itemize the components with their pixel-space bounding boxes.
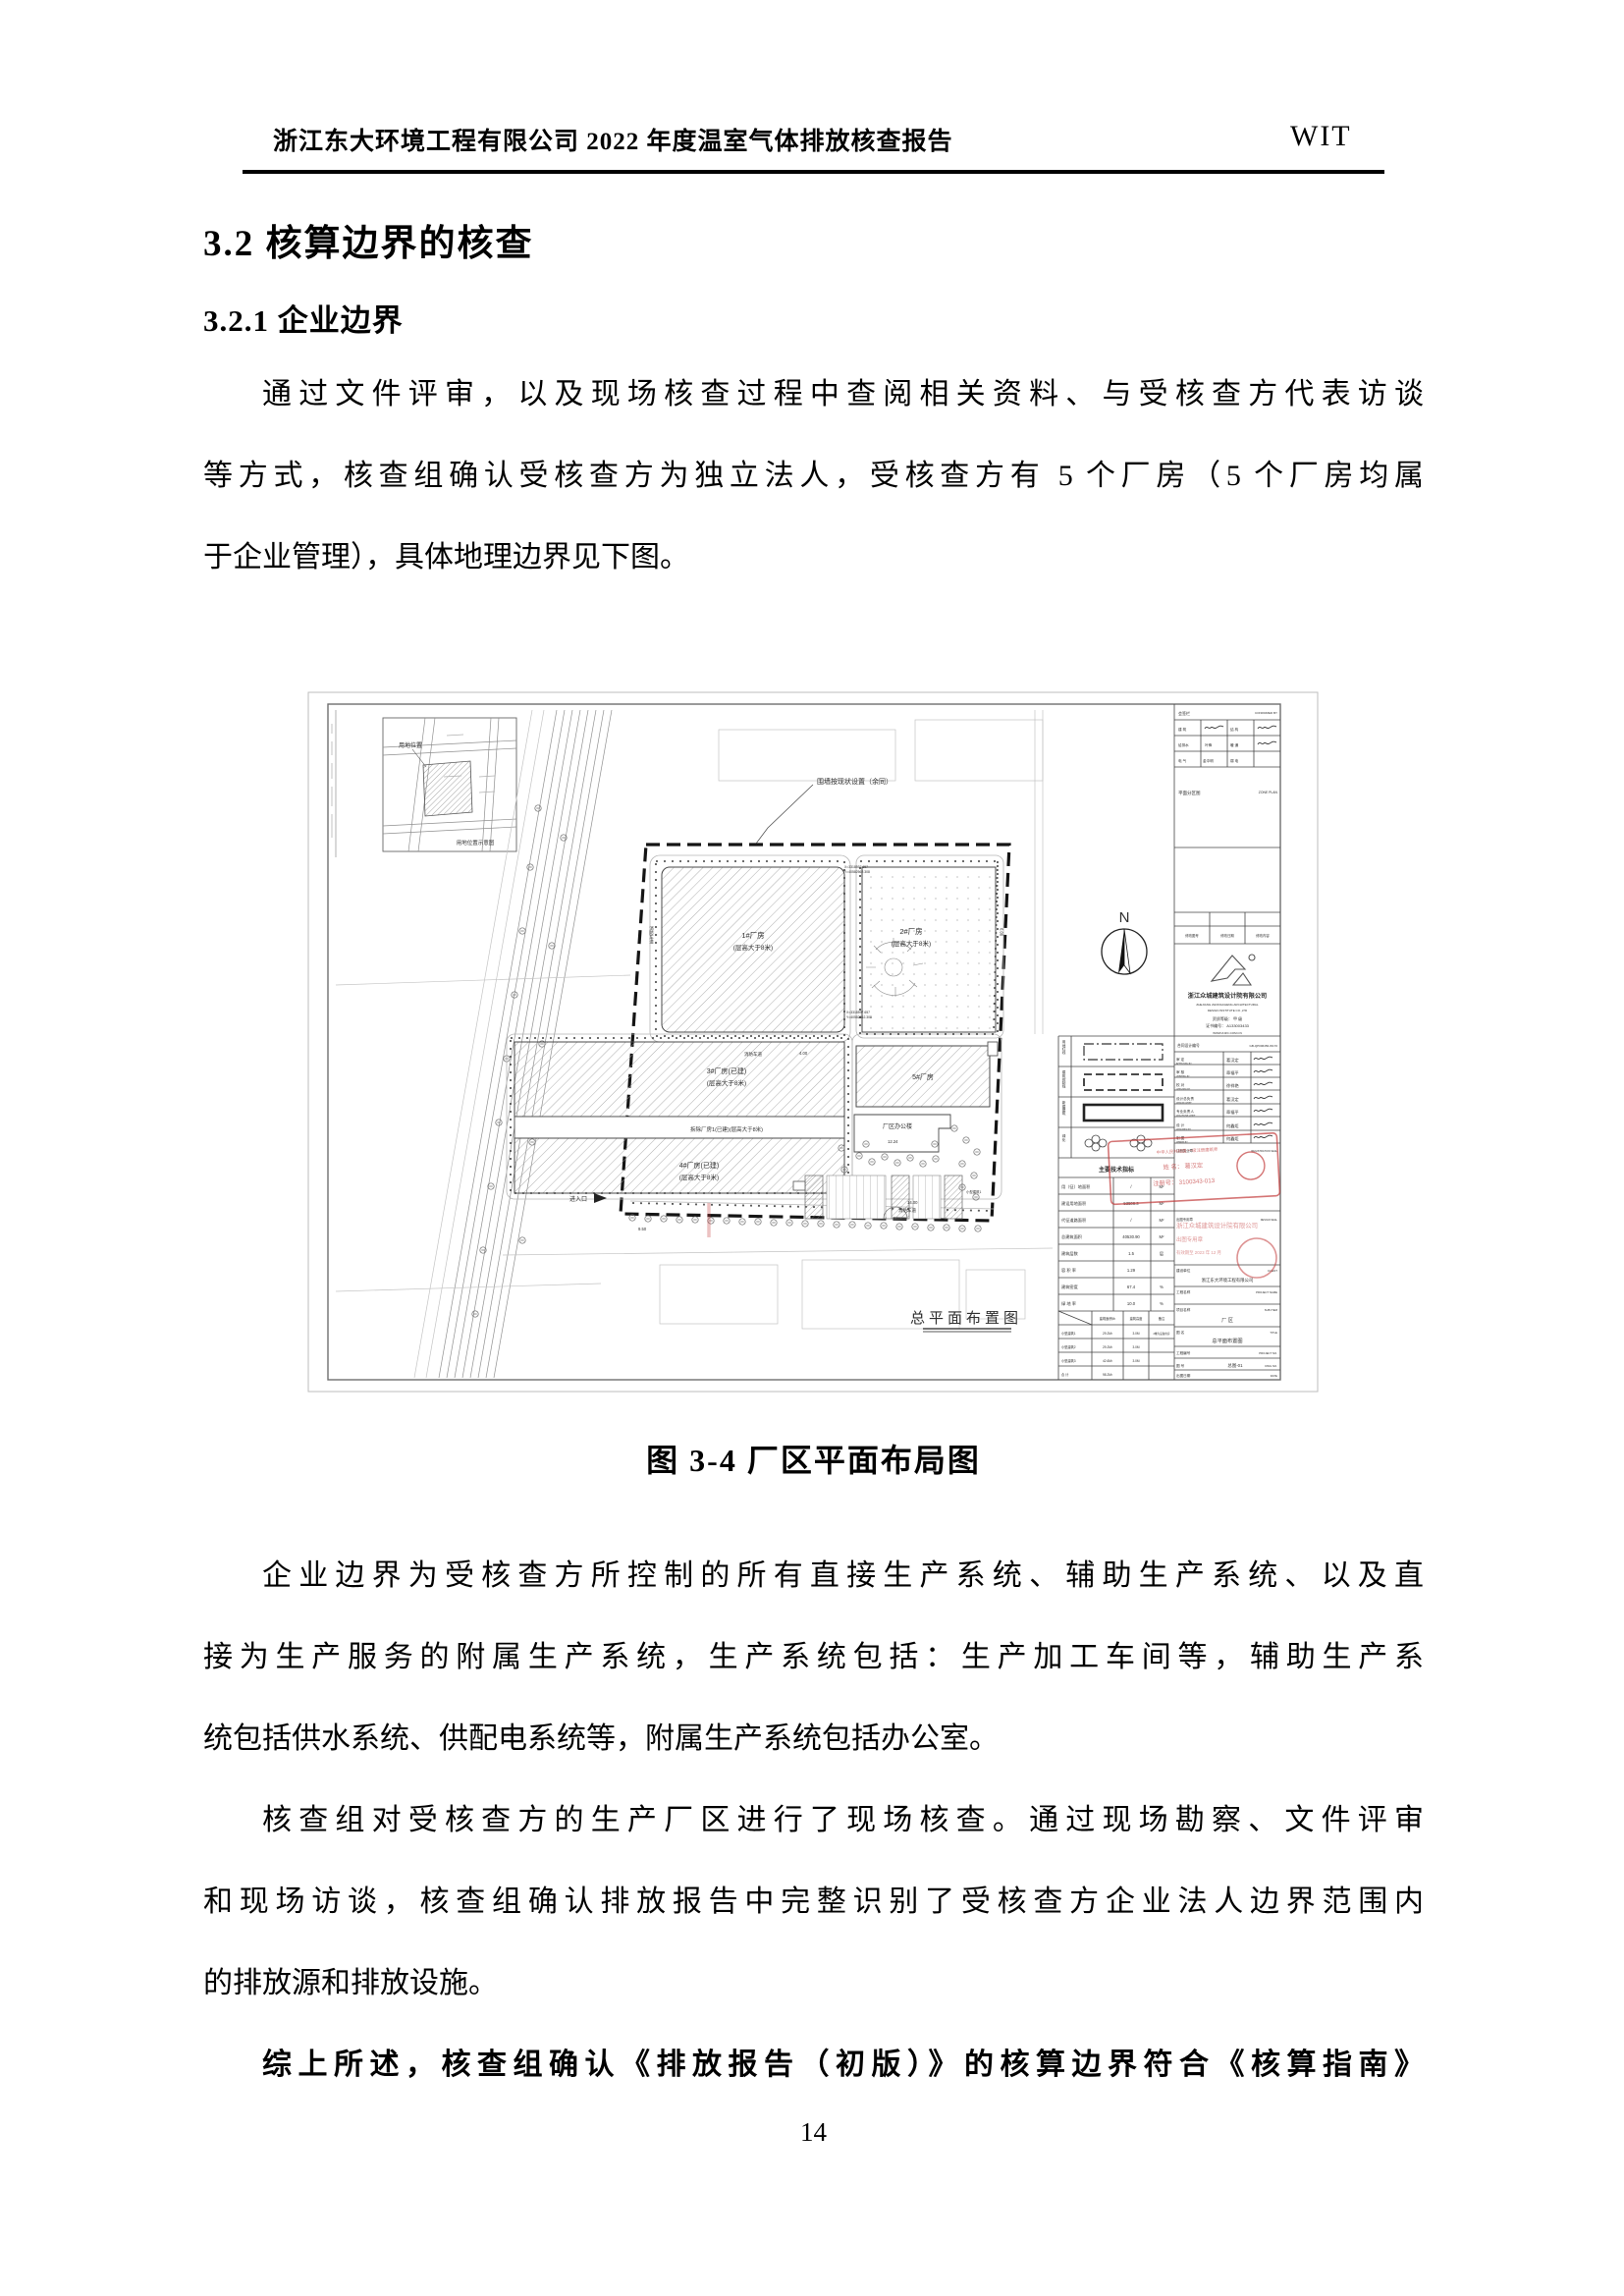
building-3-sublabel: (层高大于8米)	[707, 1078, 746, 1087]
tech-value: 1.5	[1128, 1251, 1134, 1256]
coordinate-label: Y=40582562.308	[844, 870, 870, 874]
conclusion-line: 综上所述，核查组确认《排放报告（初版）》的核算边界符合《核算指南》	[203, 2024, 1424, 2105]
small-table-header: 备注	[1159, 1316, 1165, 1321]
tech-table-header: 主要技术指标	[1099, 1166, 1134, 1174]
dimension-label: 4.00	[799, 1051, 808, 1056]
building-2	[862, 867, 996, 1032]
plan-title: 总平面布置图	[910, 1310, 1022, 1327]
company-name-en: ZHEJIANG ZHONGCHENG ARCHITECTURAL	[1196, 1003, 1259, 1007]
header-rule	[243, 170, 1384, 174]
company-cert: 资质等级： 甲 级	[1213, 1015, 1242, 1021]
sign-cell: 结 构	[1230, 727, 1239, 732]
page-header-logo-text: WIT	[1290, 120, 1352, 153]
report-page: 浙江东大环境工程有限公司 2022 年度温室气体排放核查报告 WIT 3.2 核…	[0, 0, 1624, 2296]
site-plan-figure: 用地位置 用地位置示意图	[306, 690, 1320, 1394]
date-label: 出图日期	[1176, 1373, 1191, 1378]
company-website: WWW.ZJZC.COM.CN	[1213, 1031, 1242, 1035]
building-3-label: 3#厂房(已建)	[707, 1066, 746, 1075]
paragraph-line: 于企业管理），具体地理边界见下图。	[203, 517, 1424, 598]
sign-cell: 电 气	[1178, 758, 1187, 763]
paragraph-line: 企业边界为受核查方所控制的所有直接生产系统、辅助生产系统、以及直	[203, 1535, 1424, 1616]
sig-name: 章福平	[1226, 1069, 1239, 1076]
building-2-sublabel: (层高大于8米)	[892, 939, 931, 948]
tech-label: 建筑密度	[1061, 1284, 1079, 1290]
fire-lane-label: 消防车道	[898, 1207, 916, 1214]
dwg-title-value: 总平面布置图	[1212, 1337, 1242, 1344]
body-paragraphs: 企业边界为受核查方所控制的所有直接生产系统、辅助生产系统、以及直 接为生产服务的…	[203, 1535, 1424, 2105]
sig-name: 章福平	[1226, 1109, 1239, 1116]
dimension-label: 14.00	[907, 1200, 918, 1205]
small-table-cell: 42.6M²	[1103, 1359, 1112, 1363]
tech-unit: M²	[1160, 1218, 1164, 1223]
sig-label-en: CHECKED BY	[1176, 1089, 1191, 1091]
paragraph-line: 的排放源和排放设施。	[203, 1942, 1424, 2024]
contract-no-label: 合同设计编号	[1177, 1043, 1200, 1048]
building-4-sublabel: (层高大于8米)	[679, 1173, 719, 1181]
sign-cell: 弱 电	[1230, 758, 1239, 763]
fire-lane-label: 消防车道	[744, 1051, 762, 1058]
stamp-text: 有效期至 2023 年 12 月	[1176, 1249, 1221, 1256]
north-letter: N	[1119, 909, 1130, 926]
small-building-label: 小型建筑1	[966, 1189, 982, 1194]
demolish-strip	[514, 1117, 844, 1138]
client-label: 建设单位	[1176, 1268, 1191, 1273]
sig-label: 校 对	[1176, 1082, 1185, 1087]
small-table-cell: 小型建筑3	[1061, 1358, 1076, 1363]
tech-value: 1.29	[1127, 1268, 1136, 1273]
project-label-en: PROJECT NAME	[1256, 1290, 1277, 1294]
sign-header-en: CONFIRMED BY	[1255, 711, 1277, 715]
subitem-value: 厂 区	[1221, 1317, 1233, 1324]
small-table-cell: 2幢为设备用房	[1153, 1332, 1169, 1336]
dwg-no-label: 图 号	[1176, 1363, 1185, 1368]
sig-name: 徐祥艳	[1226, 1082, 1239, 1089]
sign-cell: 建 筑	[1178, 727, 1187, 732]
sig-name: 葛汉定	[1226, 1096, 1239, 1103]
company-cert-no: 证书编号： A133003433	[1206, 1022, 1250, 1028]
small-table-header: 建筑面积M²	[1100, 1316, 1115, 1321]
small-table-cell: 29.2M²	[1103, 1345, 1112, 1349]
coordinate-label: Y=40582562.308	[846, 1015, 872, 1019]
page-number: 14	[203, 2117, 1424, 2148]
out-seal-label: 出图专用章	[1176, 1217, 1194, 1222]
sig-label-en: APPROVED BY	[1176, 1063, 1192, 1066]
dwg-title-label: 图 名	[1176, 1330, 1185, 1335]
revision-header: 修改日期	[1220, 933, 1234, 938]
small-table-cell: 3.0M	[1132, 1332, 1139, 1336]
zone-plan-label: 平面分区图	[1178, 790, 1201, 796]
dimension-label: 6.00	[1000, 928, 1004, 937]
sig-name: 何鑫炬	[1226, 1122, 1239, 1129]
subitem-label-en: SUB ITEM	[1265, 1308, 1278, 1312]
legend-label: 用地红线	[1061, 1039, 1066, 1055]
building-5-label: 5#厂房	[912, 1072, 934, 1081]
small-table-cell: 3.0M	[1132, 1345, 1139, 1349]
tech-value: 67.4	[1127, 1285, 1136, 1289]
tech-label: 代征道路面积	[1061, 1217, 1086, 1224]
sign-name: 金中明	[1203, 758, 1214, 763]
sig-label-en: DESIGN CHIEF	[1176, 1103, 1192, 1105]
legend-label: 建筑控制线	[1061, 1069, 1066, 1088]
paragraph-1: 通过文件评审，以及现场核查过程中查阅相关资料、与受核查方代表访谈 等方式，核查组…	[203, 354, 1424, 598]
paragraph-line: 接为生产服务的附属生产系统，生产系统包括：生产加工车间等，辅助生产系	[203, 1616, 1424, 1698]
sig-label-en: VERIFIED BY	[1176, 1076, 1190, 1078]
company-name-en: DESIGN INSTITUTE CO.,LTD	[1208, 1009, 1248, 1012]
inset-label: 用地位置	[399, 741, 422, 749]
small-table-cell: 小型建筑2	[1061, 1344, 1076, 1349]
paragraph-line: 统包括供水系统、供配电系统等，附属生产系统包括办公室。	[203, 1698, 1424, 1779]
paragraph-line: 通过文件评审，以及现场核查过程中查阅相关资料、与受核查方代表访谈	[203, 354, 1424, 435]
inset-caption: 用地位置示意图	[457, 839, 495, 847]
fire-lane-label: 消防车道	[649, 925, 655, 946]
sig-label: 设计总负责	[1176, 1096, 1194, 1101]
dwg-no-value: 总图-01	[1227, 1362, 1243, 1369]
subsection-heading: 3.2.1 企业边界	[203, 296, 404, 340]
contract-no-value: GB-QP006456-W170	[1249, 1044, 1277, 1048]
dimension-label: 12.24	[888, 1139, 898, 1144]
tech-label: 总建筑面积	[1061, 1233, 1082, 1240]
sig-name: 何鑫炬	[1226, 1135, 1239, 1142]
sign-name: 叶锋	[1205, 742, 1213, 747]
subitem-label: 项目名称	[1176, 1307, 1191, 1312]
dwg-no-label-en: DWG NO.	[1265, 1364, 1277, 1368]
paragraph-line: 和现场访谈，核查组确认排放报告中完整识别了受核查方企业法人边界范围内	[203, 1861, 1424, 1942]
tech-label: 用（征）地面积	[1061, 1183, 1090, 1190]
tech-unit: M²	[1160, 1234, 1164, 1239]
legend-label: 绿化	[1061, 1133, 1066, 1142]
small-table-cell: 29.2M²	[1103, 1332, 1112, 1336]
sign-header: 会签栏	[1178, 710, 1190, 716]
small-table-cell: 3.0M	[1132, 1359, 1139, 1363]
stamp-text: 出图专用章	[1176, 1235, 1204, 1243]
site-plan-svg: 用地位置 用地位置示意图	[306, 690, 1320, 1394]
section-heading: 3.2 核算边界的核查	[203, 213, 534, 266]
small-table-cell: 合 计	[1061, 1372, 1069, 1377]
client-value: 浙江东大环境工程有限公司	[1202, 1277, 1254, 1284]
entrance-label: 进入口	[569, 1195, 587, 1203]
stamp-text: 浙江众城建筑设计院有限公司	[1176, 1221, 1258, 1230]
sig-label: 专业负责人	[1176, 1109, 1194, 1114]
project-no-label: 工程编号	[1176, 1350, 1191, 1355]
inset-location-map: 用地位置 用地位置示意图	[383, 718, 516, 851]
zone-plan-label-en: ZONE PLAN	[1259, 791, 1278, 794]
dwg-title-label-en: TITLE	[1270, 1331, 1277, 1335]
sig-label-en: DESIGNED BY	[1176, 1129, 1191, 1131]
revision-header: 修改图号	[1185, 933, 1199, 938]
project-label: 工程名称	[1176, 1289, 1191, 1294]
tech-unit: %	[1160, 1285, 1164, 1289]
tech-label: 容 积 率	[1061, 1267, 1076, 1274]
office-label: 厂区办公楼	[883, 1122, 912, 1130]
tech-label: 建设用地面积	[1061, 1200, 1086, 1207]
tech-unit: %	[1160, 1301, 1164, 1306]
plan-title-block: 总平面布置图	[910, 1310, 1022, 1332]
paragraph-line: 核查组对受核查方的生产厂区进行了现场核查。通过现场勘察、文件评审	[203, 1779, 1424, 1861]
date-label-en: DATE	[1271, 1374, 1277, 1378]
building-3	[514, 1042, 844, 1117]
sig-name: 葛汉定	[1226, 1057, 1239, 1064]
company-name: 浙江众城建筑设计院有限公司	[1188, 992, 1267, 1000]
dimension-label: 9.50	[638, 1227, 647, 1231]
tech-label: 建筑层数	[1061, 1250, 1079, 1257]
building-1-label: 1#厂房	[741, 930, 764, 940]
building-1-sublabel: (层高大于8米)	[733, 943, 773, 952]
small-table-cell: 小型建筑1	[1061, 1331, 1076, 1336]
legend-label: 新建建筑	[1061, 1100, 1066, 1116]
sig-label: 审 核	[1176, 1069, 1185, 1074]
paragraph-line: 等方式，核查组确认受核查方为独立法人，受核查方有 5 个厂房（5 个厂房均属	[203, 435, 1424, 517]
coordinate-label: X=3318597.657	[844, 865, 868, 869]
building-4-label: 4#厂房(已建)	[679, 1161, 719, 1170]
sig-label: 设 计	[1176, 1122, 1185, 1127]
page-header-title: 浙江东大环境工程有限公司 2022 年度温室气体排放核查报告	[273, 122, 953, 157]
small-table-header: 建筑高度	[1130, 1316, 1144, 1321]
project-no-label-en: PROJECT NO.	[1259, 1351, 1277, 1355]
figure-caption: 图 3-4 厂区平面布局图	[203, 1436, 1424, 1481]
tech-label: 绿 地 率	[1061, 1300, 1076, 1307]
coordinate-label: X=3318597.657	[846, 1011, 870, 1014]
small-table-cell: 98.2M²	[1103, 1373, 1112, 1377]
revision-header: 修改内容	[1256, 933, 1270, 938]
sig-label: 审 定	[1176, 1057, 1185, 1062]
sig-label-en: DRAWN BY	[1176, 1141, 1188, 1144]
sig-label-en: DISCIPLINE CHIEF	[1176, 1116, 1196, 1118]
out-seal-label-en: DESIGN SEAL	[1261, 1218, 1278, 1222]
wall-note: 围墙按现状设置（余同）	[817, 777, 893, 786]
building-2-label: 2#厂房	[899, 926, 922, 936]
sign-cell: 给排水	[1178, 742, 1189, 747]
tech-value: 10.0	[1127, 1301, 1136, 1306]
demolish-strip-label: 拆除厂房1(已建)(层高大于8米)	[690, 1125, 763, 1133]
sign-cell: 暖 通	[1230, 742, 1239, 747]
tech-value: 40530.90	[1122, 1234, 1140, 1239]
